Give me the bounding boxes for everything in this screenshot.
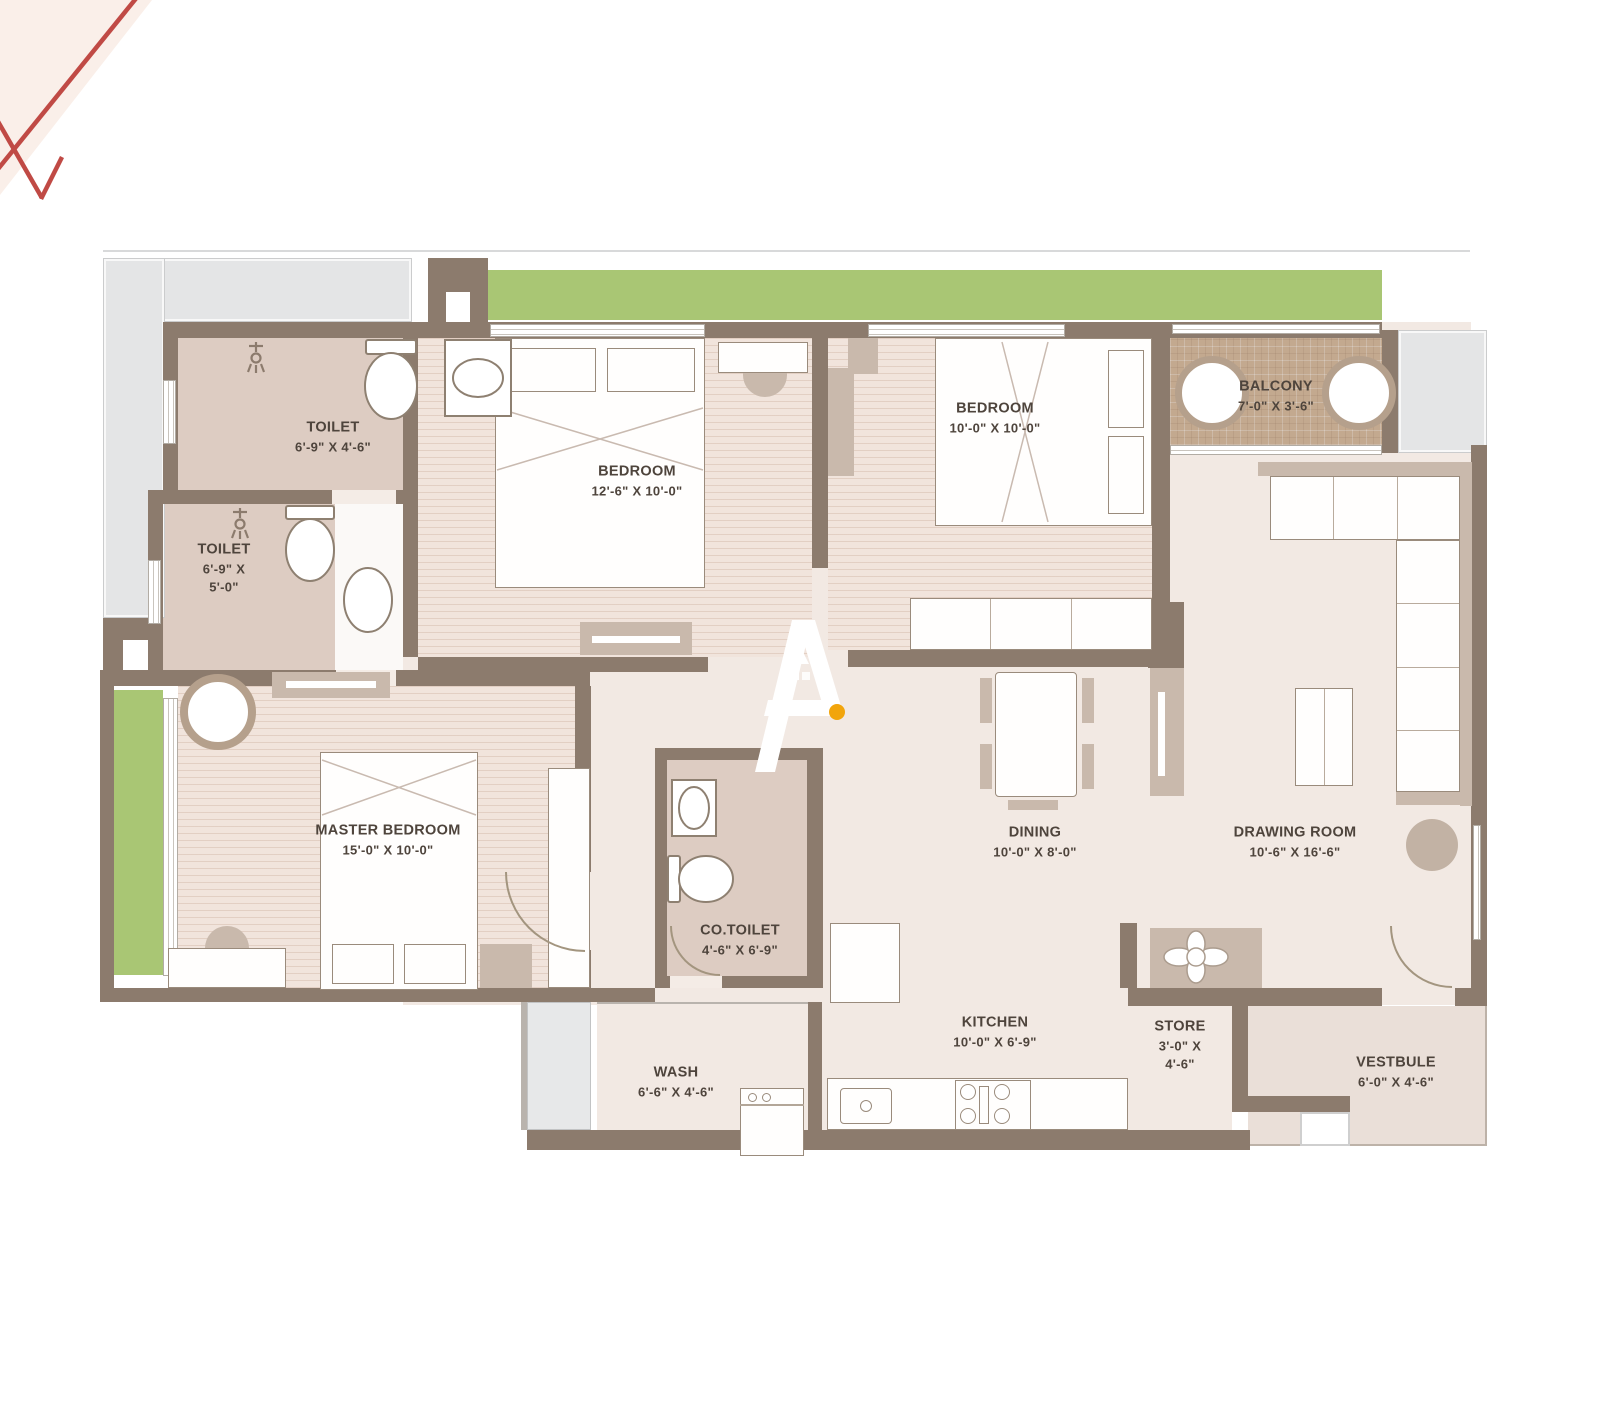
room-label-master-bedroom: MASTER BEDROOM 15'-0" X 10'-0" [315,820,460,859]
wall [403,338,418,657]
room-label-toilet-2: TOILET 6'-9" X 5'-0" [197,539,250,596]
room-dims: 12'-6" X 10'-0" [592,482,683,500]
window [1473,825,1481,940]
room-dims: 6'-9" X [197,560,250,578]
room-label-drawing-room: DRAWING ROOM 10'-6" X 16'-6" [1234,822,1357,861]
room-toilet-1-floor [178,338,405,490]
balcony-railing [1170,445,1382,455]
sofa-back [1460,476,1472,806]
room-dims: 7'-0" X 3'-6" [1238,397,1314,415]
burner [960,1108,976,1124]
room-dims: 10'-0" X 8'-0" [993,843,1076,861]
wall [807,748,823,988]
pillow [332,944,394,984]
sofa [1396,540,1460,792]
room-label-wash: WASH 6'-6" X 4'-6" [638,1062,714,1101]
room-label-dining: DINING 10'-0" X 8'-0" [993,822,1076,861]
wall [1148,602,1184,668]
wall [527,1130,1250,1150]
burner [994,1108,1010,1124]
window [163,698,178,976]
room-name: MASTER BEDROOM [315,820,460,841]
shoe-cabinet [1150,928,1262,988]
room-dims: 5'-0" [197,578,250,596]
room-dims: 10'-6" X 16'-6" [1234,843,1357,861]
room-label-co-toilet: CO.TOILET 4'-6" X 6'-9" [700,920,780,959]
burner [994,1084,1010,1100]
sofa-back [1258,462,1472,476]
sofa [1270,476,1460,540]
wall [103,618,148,640]
room-dims: 10'-0" X 6'-9" [953,1033,1036,1051]
wall [1232,1096,1350,1112]
corner-ribbon-icon [0,0,152,199]
room-dims: 6'-9" X 4'-6" [295,438,371,456]
balcony-chair [1322,356,1396,430]
room-dims: 15'-0" X 10'-0" [315,841,460,859]
room-label-store: STORE 3'-0" X 4'-6" [1154,1016,1205,1073]
room-label-bedroom-2: BEDROOM 10'-0" X 10'-0" [950,398,1041,437]
dining-chair [1082,744,1094,789]
wall [1455,988,1487,1006]
wall [655,748,667,988]
toilet-2-basin-nook [335,504,403,670]
dining-table [995,672,1077,797]
dining-chair [980,744,992,789]
dresser [168,948,286,988]
room-name: DINING [993,822,1076,843]
room-dims: 6'-0" X 4'-6" [1356,1073,1436,1091]
washing-machine-knob [762,1093,771,1102]
sofa-back [1396,792,1472,805]
room-name: CO.TOILET [700,920,780,941]
washing-machine-knob [748,1093,757,1102]
service-duct [527,1002,591,1130]
wall [100,686,114,988]
room-dims: 6'-6" X 4'-6" [638,1083,714,1101]
sink-drain [860,1100,872,1112]
refrigerator [830,923,900,1003]
room-label-kitchen: KITCHEN 10'-0" X 6'-9" [953,1012,1036,1051]
tv-unit [1150,668,1184,796]
wall [521,1002,527,1130]
room-dims: 3'-0" X [1154,1037,1205,1055]
wall [848,650,1152,667]
room-name: TOILET [197,539,250,560]
pillow [1108,350,1144,428]
room-dims: 10'-0" X 10'-0" [950,419,1041,437]
side-unit [828,368,854,476]
desk [718,342,808,373]
duct-notch [446,292,470,322]
room-name: BEDROOM [950,398,1041,419]
window [868,324,1065,337]
tv-unit-slit [1158,692,1165,776]
wardrobe-slit [592,636,680,643]
wall [655,748,819,760]
room-name: TOILET [295,417,371,438]
pouf [1406,819,1458,871]
round-chair [180,674,256,750]
room-label-bedroom-1: BEDROOM 12'-6" X 10'-0" [592,461,683,500]
center-table [1295,688,1353,786]
room-name: KITCHEN [953,1012,1036,1033]
wall [103,638,123,686]
washing-machine-panel [740,1104,804,1106]
wardrobe [910,598,1152,650]
door-opening [332,490,396,504]
window [490,324,705,337]
room-name: BEDROOM [592,461,683,482]
nightstand [480,944,532,988]
room-name: VESTBULE [1356,1052,1436,1073]
dining-chair [1082,678,1094,723]
wall [1152,445,1170,602]
room-name: BALCONY [1238,376,1314,397]
dining-chair [980,678,992,723]
room-name: WASH [638,1062,714,1083]
planter-left [112,690,163,975]
pillow [508,348,596,392]
entry-step [1300,1112,1350,1146]
wall [808,1002,822,1130]
room-name: DRAWING ROOM [1234,822,1357,843]
stove-center [979,1086,989,1124]
pillow [607,348,695,392]
lawn-strip-top [488,270,1382,322]
window [163,380,176,444]
window [1172,324,1380,334]
pillow [404,944,466,984]
pillow [1108,436,1144,514]
wall [418,657,708,672]
room-name: STORE [1154,1016,1205,1037]
dining-bench [1008,800,1058,810]
wall [1232,1006,1248,1096]
room-label-balcony: BALCONY 7'-0" X 3'-6" [1238,376,1314,415]
room-label-vestibule: VESTBULE 6'-0" X 4'-6" [1356,1052,1436,1091]
tv-unit-slit [286,681,376,688]
room-dims: 4'-6" [1154,1055,1205,1073]
wall [1152,330,1170,445]
room-dims: 4'-6" X 6'-9" [700,941,780,959]
wall [812,338,828,568]
burner [960,1084,976,1100]
floor-plan: TOILET 6'-9" X 4'-6" TOILET 6'-9" X 5'-0… [0,0,1600,1421]
window [148,560,161,624]
wall [100,988,655,1002]
wall [1120,923,1137,988]
outer-boundary-line [103,250,1470,252]
door-opening [670,976,722,988]
room-label-toilet-1: TOILET 6'-9" X 4'-6" [295,417,371,456]
terrace-top-right [1398,330,1487,453]
wall [1128,988,1382,1006]
